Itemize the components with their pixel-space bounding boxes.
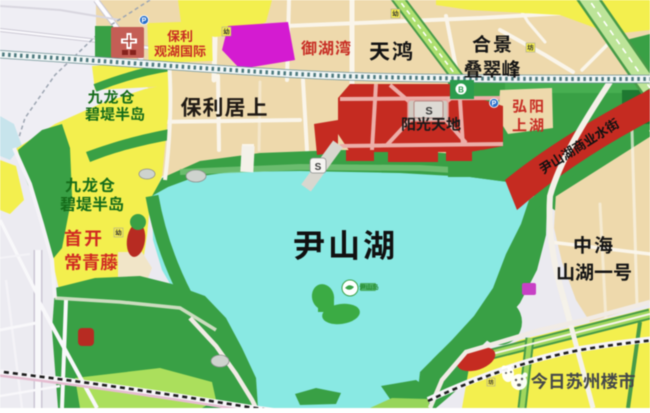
svg-text:P: P	[492, 101, 497, 108]
svg-text:S: S	[315, 162, 322, 173]
svg-text:B: B	[458, 86, 464, 95]
svg-text:S: S	[425, 106, 432, 118]
svg-text:P: P	[142, 18, 147, 25]
